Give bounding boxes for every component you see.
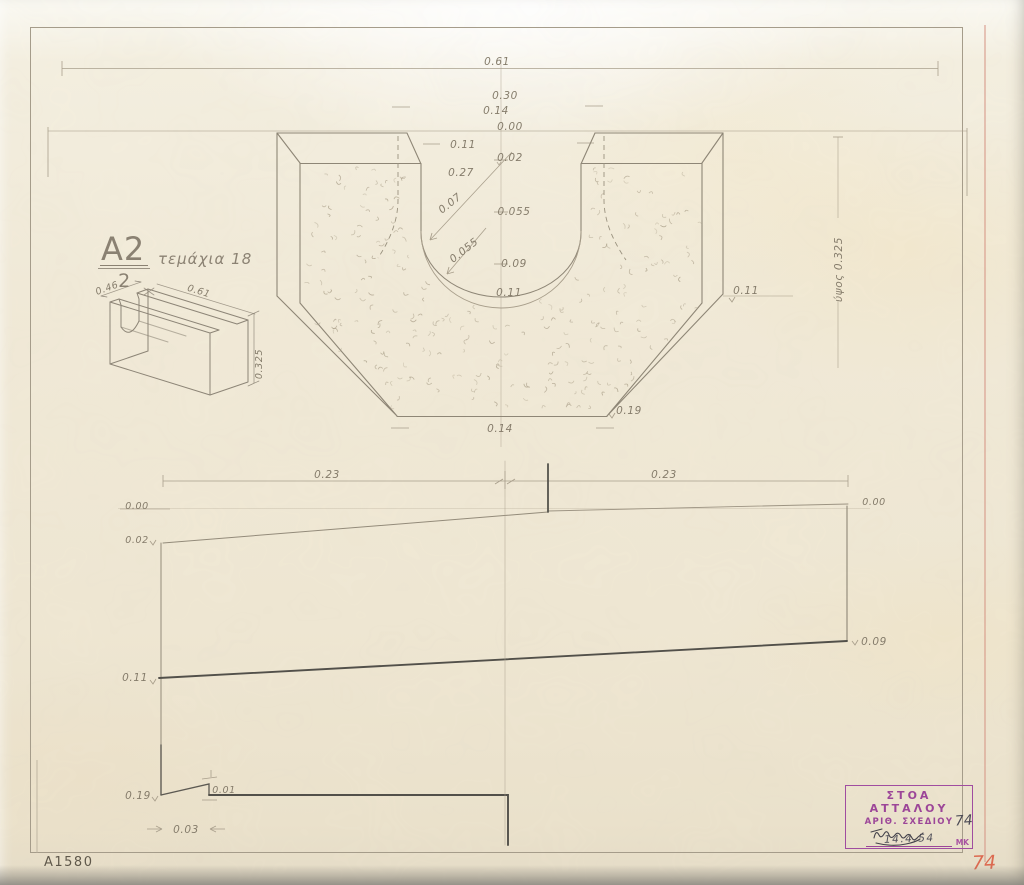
dim-right-09: 0.09 — [861, 636, 887, 648]
dim-left-02: 0.02 — [125, 535, 149, 546]
dim-depth-02: 0.02 — [497, 152, 523, 164]
dim-bottom-width: 0.14 — [487, 423, 513, 435]
dim-lip-width: 0.11 — [450, 139, 476, 151]
dim-width-03: 0.03 — [173, 824, 199, 836]
pieces-note: τεμάχια 18 — [158, 250, 278, 268]
dim-span-left: 0.23 — [314, 469, 340, 481]
dim-depth-055: 0.055 — [497, 206, 530, 218]
dim-level-zero: 0.00 — [497, 121, 523, 133]
piece-code: A2 — [100, 234, 148, 266]
dim-mouth-top: 0.30 — [492, 90, 518, 102]
dim-left-00: 0.00 — [125, 501, 149, 512]
height-note: ύψος 0.325 — [833, 237, 845, 302]
stamp-title: ΣΤΟΑ ΑΤΤΑΛΟΥ — [846, 789, 972, 815]
dim-left-11: 0.11 — [122, 672, 148, 684]
stamp-drawing-number: 74 — [955, 812, 974, 829]
stamp-initials: ΜΚ — [956, 838, 969, 847]
drawing-sheet: 0.61 0.30 0.14 0.00 0.11 0.02 0.27 0.07 … — [0, 0, 1024, 885]
dim-depth-11: 0.11 — [496, 287, 522, 299]
dim-mouth-mid: 0.14 — [483, 105, 509, 117]
dim-width-27: 0.27 — [448, 167, 474, 179]
signature — [870, 826, 948, 846]
dim-corner-depth: 0.19 — [616, 405, 642, 417]
dim-step-01: 0.01 — [212, 785, 236, 796]
dim-right-00: 0.00 — [862, 497, 886, 508]
drawing-canvas: 0.61 0.30 0.14 0.00 0.11 0.02 0.27 0.07 … — [0, 0, 1024, 885]
drawing-stamp: ΣΤΟΑ ΑΤΤΑΛΟΥ ΑΡΙΘ. ΣΧΕΔΙΟΥ74 14.4.54 ΜΚ — [845, 785, 973, 849]
iso-dim-height: 0.325 — [254, 349, 265, 379]
dim-depth-09: 0.09 — [501, 258, 527, 270]
dim-left-19: 0.19 — [125, 790, 151, 802]
piece-denominator: 2 — [100, 270, 148, 292]
dim-span-right: 0.23 — [651, 469, 677, 481]
dim-right-level-11: 0.11 — [733, 285, 759, 297]
paper-bottom-edge — [0, 865, 1024, 885]
piece-title-block: A2 2 τεμάχια 18 — [100, 234, 148, 292]
dim-overall-width: 0.61 — [484, 56, 510, 68]
